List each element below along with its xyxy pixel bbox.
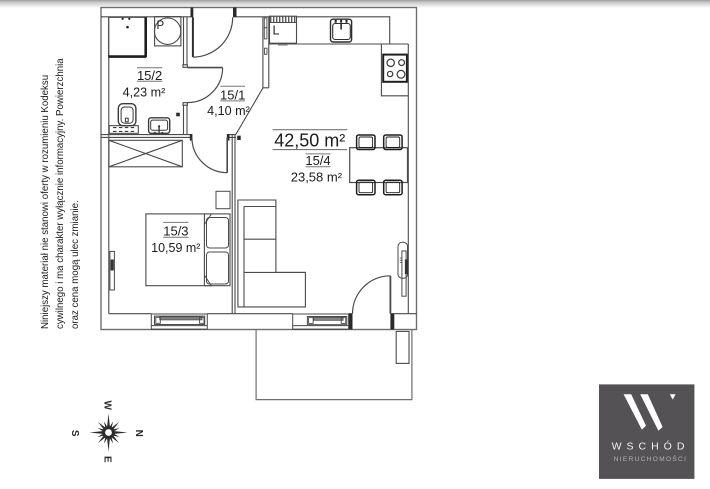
svg-text:WSCHÓD: WSCHÓD	[612, 440, 690, 453]
svg-text:4,10 m²: 4,10 m²	[207, 104, 250, 118]
svg-text:42,50 m²: 42,50 m²	[274, 130, 345, 150]
svg-text:P: P	[157, 20, 165, 32]
svg-text:15/4: 15/4	[305, 153, 330, 168]
svg-text:S: S	[69, 430, 80, 437]
svg-text:10,59 m²: 10,59 m²	[151, 241, 200, 255]
svg-text:Niniejszy materiał nie stanowi: Niniejszy materiał nie stanowi oferty w …	[40, 75, 51, 329]
svg-text:NIERUCHOMOŚCI: NIERUCHOMOŚCI	[614, 454, 688, 463]
svg-text:W: W	[101, 400, 112, 410]
svg-text:E: E	[101, 456, 112, 463]
svg-text:N: N	[133, 430, 144, 437]
svg-text:cywilnego i ma charakter wyłąc: cywilnego i ma charakter wyłącznie infor…	[55, 58, 66, 329]
svg-text:23,58 m²: 23,58 m²	[291, 170, 343, 185]
svg-text:15/3: 15/3	[163, 224, 188, 239]
svg-text:15/1: 15/1	[220, 87, 245, 102]
svg-text:4,23 m²: 4,23 m²	[123, 86, 166, 100]
svg-text:oraz cena mogą ulec zmianie.: oraz cena mogą ulec zmianie.	[70, 200, 81, 329]
svg-text:L: L	[273, 24, 280, 38]
svg-text:15/2: 15/2	[137, 68, 162, 83]
